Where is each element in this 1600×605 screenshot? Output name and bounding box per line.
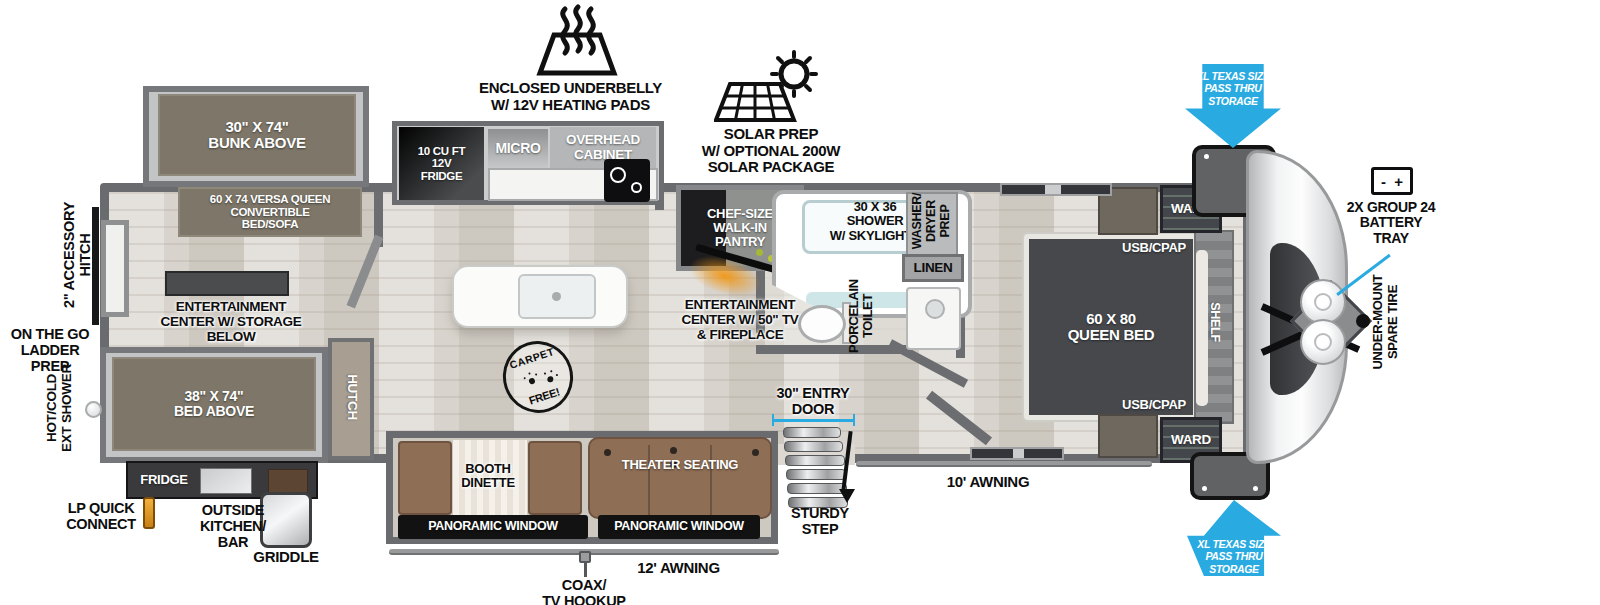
battery-plus: + <box>1394 173 1403 190</box>
cooktop-icon <box>604 159 650 202</box>
accessory-hitch-label: 2" ACCESSORY HITCH <box>62 195 98 315</box>
outside-kitchen-cabinet <box>268 469 308 493</box>
outside-kitchen-counter <box>200 468 252 494</box>
usb-cpap-bottom: USB/CPAP <box>1108 398 1200 412</box>
panoramic-window-left: PANORAMIC WINDOW <box>398 515 588 539</box>
theater-seating-label: THEATER SEATING <box>596 458 764 472</box>
microwave-label: MICRO <box>495 141 540 156</box>
door-width-line-icon <box>773 419 855 422</box>
awning-12-label: 12' AWNING <box>616 560 741 577</box>
bath-vanity <box>906 287 961 350</box>
theater-seating <box>588 437 772 519</box>
hutch-label: HUTCH <box>343 362 359 432</box>
awning-10-bar <box>856 461 1152 467</box>
coax-connector-icon <box>579 551 591 563</box>
fridge-12v-label: 10 CU FT 12V FRIDGE <box>418 145 465 183</box>
linen-label: LINEN <box>913 261 952 276</box>
battery-tray-label: 2X GROUP 24 BATTERY TRAY <box>1332 200 1450 246</box>
pass-thru-arrow-down-icon: XL TEXAS SIZE PASS THRU STORAGE <box>1185 64 1281 148</box>
solar-prep-label: SOLAR PREP W/ OPTIONAL 200W SOLAR PACKAG… <box>692 126 850 176</box>
seat-seam <box>710 445 712 515</box>
outside-kitchen-label: OUTSIDE KITCHEN/ BAR <box>184 503 282 551</box>
vanity-sink-icon <box>925 299 945 319</box>
coax-pin <box>584 563 587 577</box>
entertainment-storage-label: ENTERTAINMENT CENTER W/ STORAGE BELOW <box>140 300 322 345</box>
entry-door-label: 30" ENTRY DOOR <box>762 386 864 418</box>
lp-quick-connect-label: LP QUICK CONNECT <box>52 501 150 533</box>
battery-icon: - + <box>1371 167 1413 195</box>
washer-dryer-label: WASHER/ DRYER PREP <box>911 181 955 261</box>
sturdy-step-label: STURDY STEP <box>776 506 864 538</box>
step-tread <box>787 483 847 494</box>
panoramic-window-right: PANORAMIC WINDOW <box>598 515 760 539</box>
entry-steps-icon <box>783 427 845 509</box>
usb-cpap-top: USB/CPAP <box>1108 241 1200 255</box>
screw-dot <box>1202 486 1207 491</box>
propane-tank-2 <box>1300 319 1346 365</box>
seat-seam <box>648 445 650 515</box>
step-tread <box>786 469 846 480</box>
nightstand-bottom <box>1098 414 1158 458</box>
step-tread <box>783 427 841 438</box>
panoramic-window-label: PANORAMIC WINDOW <box>614 520 744 534</box>
bedroom-window-top <box>1000 183 1112 196</box>
coax-label: COAX/ TV HOOKUP <box>518 578 650 605</box>
cupholder-dot <box>670 447 677 454</box>
underbelly-label: ENCLOSED UNDERBELLY W/ 12V HEATING PADS <box>468 80 673 113</box>
booth-dinette-label: BOOTH DINETTE <box>428 462 548 491</box>
tank-swirl <box>1314 293 1332 311</box>
step-tread <box>784 441 843 452</box>
step-arrow-head <box>839 489 855 503</box>
bedroom-window-bottom <box>970 447 1064 460</box>
awning-10-label: 10' AWNING <box>926 474 1050 491</box>
burner-small <box>631 182 642 193</box>
pass-thru-arrow-up-icon: XL TEXAS SIZE PASS THRU STORAGE <box>1187 500 1281 576</box>
heating-pads-icon <box>532 3 622 77</box>
burner-large <box>610 167 626 183</box>
toilet-bowl <box>798 305 846 343</box>
versa-queen-label: 60 X 74 VERSA QUEEN CONVERTIBLE BED/SOFA <box>210 193 330 231</box>
shelf-label: SHELF <box>1207 294 1221 350</box>
wall-bath-bottom <box>756 345 908 354</box>
pantry-label: CHEF-SIZE WALK-IN PANTRY <box>707 207 773 250</box>
queen-bed-label: 60 X 80 QUEEN BED <box>1068 311 1154 344</box>
pass-thru-top-label: XL TEXAS SIZE PASS THRU STORAGE <box>1193 70 1273 107</box>
fridge-12v: 10 CU FT 12V FRIDGE <box>399 127 484 200</box>
ext-shower-label: HOT/COLD EXT SHOWER <box>45 353 79 463</box>
linen-closet: LINEN <box>902 254 964 282</box>
versa-queen-sofa: 60 X 74 VERSA QUEEN CONVERTIBLE BED/SOFA <box>178 187 362 237</box>
paw-print-icon <box>547 376 554 383</box>
panoramic-window-label: PANORAMIC WINDOW <box>428 520 558 534</box>
shower-knob-icon <box>85 401 102 418</box>
queen-bed: 60 X 80 QUEEN BED <box>1029 239 1193 415</box>
rear-window <box>101 220 129 317</box>
griddle-label: GRIDDLE <box>238 549 334 566</box>
entertainment-cabinet <box>165 271 289 296</box>
solar-panel-icon <box>714 50 818 126</box>
door-line-tick <box>853 414 855 426</box>
screw-dot <box>1204 154 1209 159</box>
microwave: MICRO <box>488 129 548 168</box>
faucet-icon <box>552 292 561 301</box>
bunk-above: 30" X 74" BUNK ABOVE <box>158 94 356 176</box>
bunk-label: 30" X 74" BUNK ABOVE <box>208 119 305 152</box>
tank-swirl <box>1314 333 1332 351</box>
battery-minus: - <box>1381 173 1386 190</box>
door-line-tick <box>772 414 774 426</box>
outside-fridge-label: FRIDGE <box>132 473 196 487</box>
floorplan-canvas: 30" X 74" BUNK ABOVE 60 X 74 VERSA QUEEN… <box>0 0 1600 605</box>
pass-thru-bottom-label: XL TEXAS SIZE PASS THRU STORAGE <box>1194 538 1274 575</box>
cupholder-dot <box>752 449 759 456</box>
overhead-cabinet-label: OVERHEAD CABINET <box>566 133 640 163</box>
screw-dot <box>1253 486 1258 491</box>
wardrobe-bottom-label: WARD <box>1171 433 1211 448</box>
cupholder-dot <box>604 449 611 456</box>
bed38-label: 38" X 74" BED ABOVE <box>174 389 254 420</box>
bed38-above: 38" X 74" BED ABOVE <box>112 357 316 451</box>
hitch-coupler <box>1356 314 1370 328</box>
step-tread <box>785 455 845 466</box>
toilet-label: PORCELAIN TOILET <box>847 266 881 366</box>
spare-tire-label: UNDER-MOUNT SPARE TIRE <box>1371 264 1405 380</box>
paw-print-icon <box>528 377 536 385</box>
